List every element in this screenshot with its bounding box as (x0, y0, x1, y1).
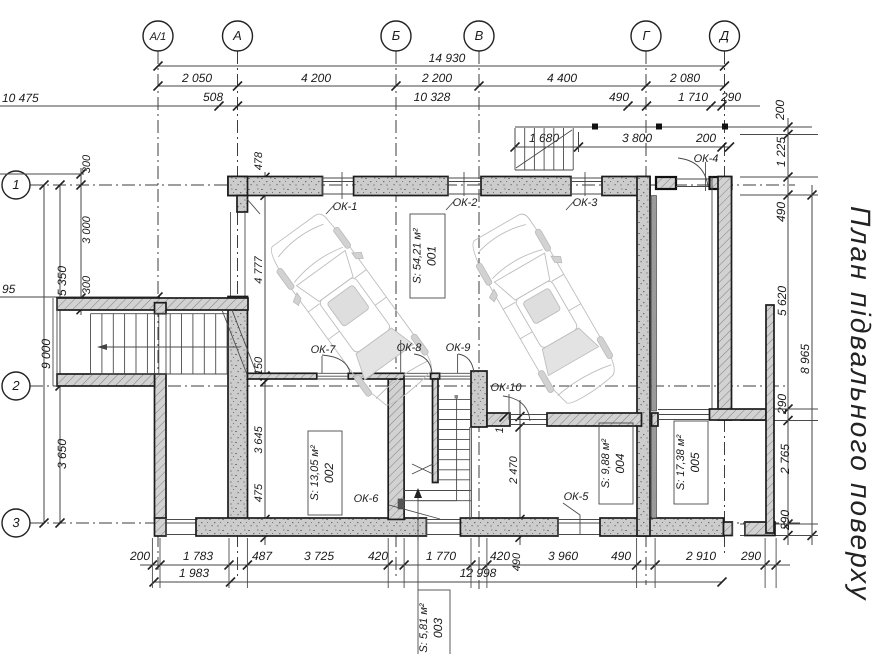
svg-text:S: 9,88 м²: S: 9,88 м² (600, 439, 612, 488)
svg-text:005: 005 (688, 452, 702, 472)
svg-text:300: 300 (81, 154, 93, 173)
svg-text:2 050: 2 050 (181, 71, 212, 85)
svg-text:487: 487 (252, 549, 273, 563)
svg-text:ОК-6: ОК-6 (354, 493, 380, 505)
svg-text:12 998: 12 998 (460, 566, 497, 580)
svg-text:3: 3 (12, 515, 20, 530)
svg-text:А/1: А/1 (149, 31, 167, 43)
svg-text:А: А (232, 28, 242, 43)
svg-text:S: 13,05 м²: S: 13,05 м² (309, 445, 321, 501)
svg-text:3 725: 3 725 (304, 549, 334, 563)
svg-text:План підвального поверху: План підвального поверху (845, 206, 876, 602)
svg-text:10 475: 10 475 (2, 91, 39, 105)
svg-text:2: 2 (11, 378, 20, 393)
svg-text:1 783: 1 783 (183, 549, 213, 563)
svg-text:508: 508 (203, 90, 223, 104)
svg-text:200: 200 (773, 100, 787, 121)
svg-text:S: 54,21 м²: S: 54,21 м² (412, 228, 424, 284)
svg-text:478: 478 (253, 151, 265, 170)
svg-text:ОК-2: ОК-2 (453, 197, 478, 209)
svg-text:10 328: 10 328 (414, 90, 451, 104)
svg-text:4 777: 4 777 (253, 255, 265, 283)
svg-text:1 770: 1 770 (426, 549, 456, 563)
svg-text:95: 95 (2, 282, 16, 296)
svg-text:2 200: 2 200 (421, 71, 452, 85)
svg-text:2 910: 2 910 (685, 549, 716, 563)
svg-text:290: 290 (778, 510, 792, 531)
svg-text:S: 5,81 м²: S: 5,81 м² (418, 603, 430, 652)
svg-text:ОК-3: ОК-3 (573, 197, 599, 209)
svg-text:4 200: 4 200 (301, 71, 331, 85)
svg-text:002: 002 (322, 463, 336, 483)
svg-text:290: 290 (720, 90, 741, 104)
svg-text:3 960: 3 960 (548, 549, 578, 563)
svg-text:4 400: 4 400 (547, 71, 577, 85)
svg-text:9 000: 9 000 (39, 339, 53, 369)
svg-text:475: 475 (253, 483, 265, 502)
svg-text:200: 200 (695, 131, 716, 145)
svg-text:490: 490 (611, 549, 631, 563)
svg-text:2 470: 2 470 (508, 455, 520, 484)
svg-text:150: 150 (253, 356, 265, 375)
svg-text:490: 490 (609, 90, 629, 104)
svg-text:5 620: 5 620 (775, 286, 789, 316)
svg-text:ОК-1: ОК-1 (333, 201, 358, 213)
svg-text:1 983: 1 983 (179, 566, 209, 580)
svg-text:3 000: 3 000 (81, 215, 93, 243)
svg-text:Б: Б (392, 28, 401, 43)
svg-text:S: 17,38 м²: S: 17,38 м² (675, 435, 687, 491)
svg-text:2 080: 2 080 (669, 71, 700, 85)
svg-text:490: 490 (774, 202, 788, 222)
svg-text:420: 420 (368, 549, 388, 563)
svg-text:004: 004 (613, 453, 627, 473)
svg-text:300: 300 (81, 275, 93, 294)
svg-text:ОК-5: ОК-5 (564, 491, 590, 503)
svg-text:ОК-10: ОК-10 (491, 382, 523, 394)
svg-text:В: В (475, 28, 484, 43)
svg-text:1 710: 1 710 (678, 90, 708, 104)
svg-text:14 930: 14 930 (429, 51, 466, 65)
svg-text:ОК-4: ОК-4 (694, 153, 719, 165)
svg-text:1 225: 1 225 (774, 137, 788, 167)
svg-text:001: 001 (425, 246, 439, 266)
svg-text:420: 420 (490, 549, 510, 563)
svg-text:ОК-7: ОК-7 (311, 344, 337, 356)
svg-text:Д: Д (718, 28, 729, 43)
svg-text:5 350: 5 350 (55, 266, 69, 296)
svg-text:3 800: 3 800 (622, 131, 652, 145)
svg-text:200: 200 (129, 549, 150, 563)
svg-text:2 765: 2 765 (778, 444, 792, 475)
svg-text:490: 490 (511, 552, 523, 571)
svg-text:003: 003 (431, 618, 445, 638)
svg-text:3 645: 3 645 (253, 425, 265, 453)
svg-text:290: 290 (775, 394, 789, 415)
svg-text:290: 290 (740, 549, 761, 563)
svg-text:3 650: 3 650 (55, 439, 69, 469)
svg-text:8 965: 8 965 (798, 344, 812, 374)
svg-text:Г: Г (642, 28, 650, 43)
svg-text:ОК-9: ОК-9 (446, 342, 471, 354)
svg-text:1: 1 (12, 177, 19, 192)
